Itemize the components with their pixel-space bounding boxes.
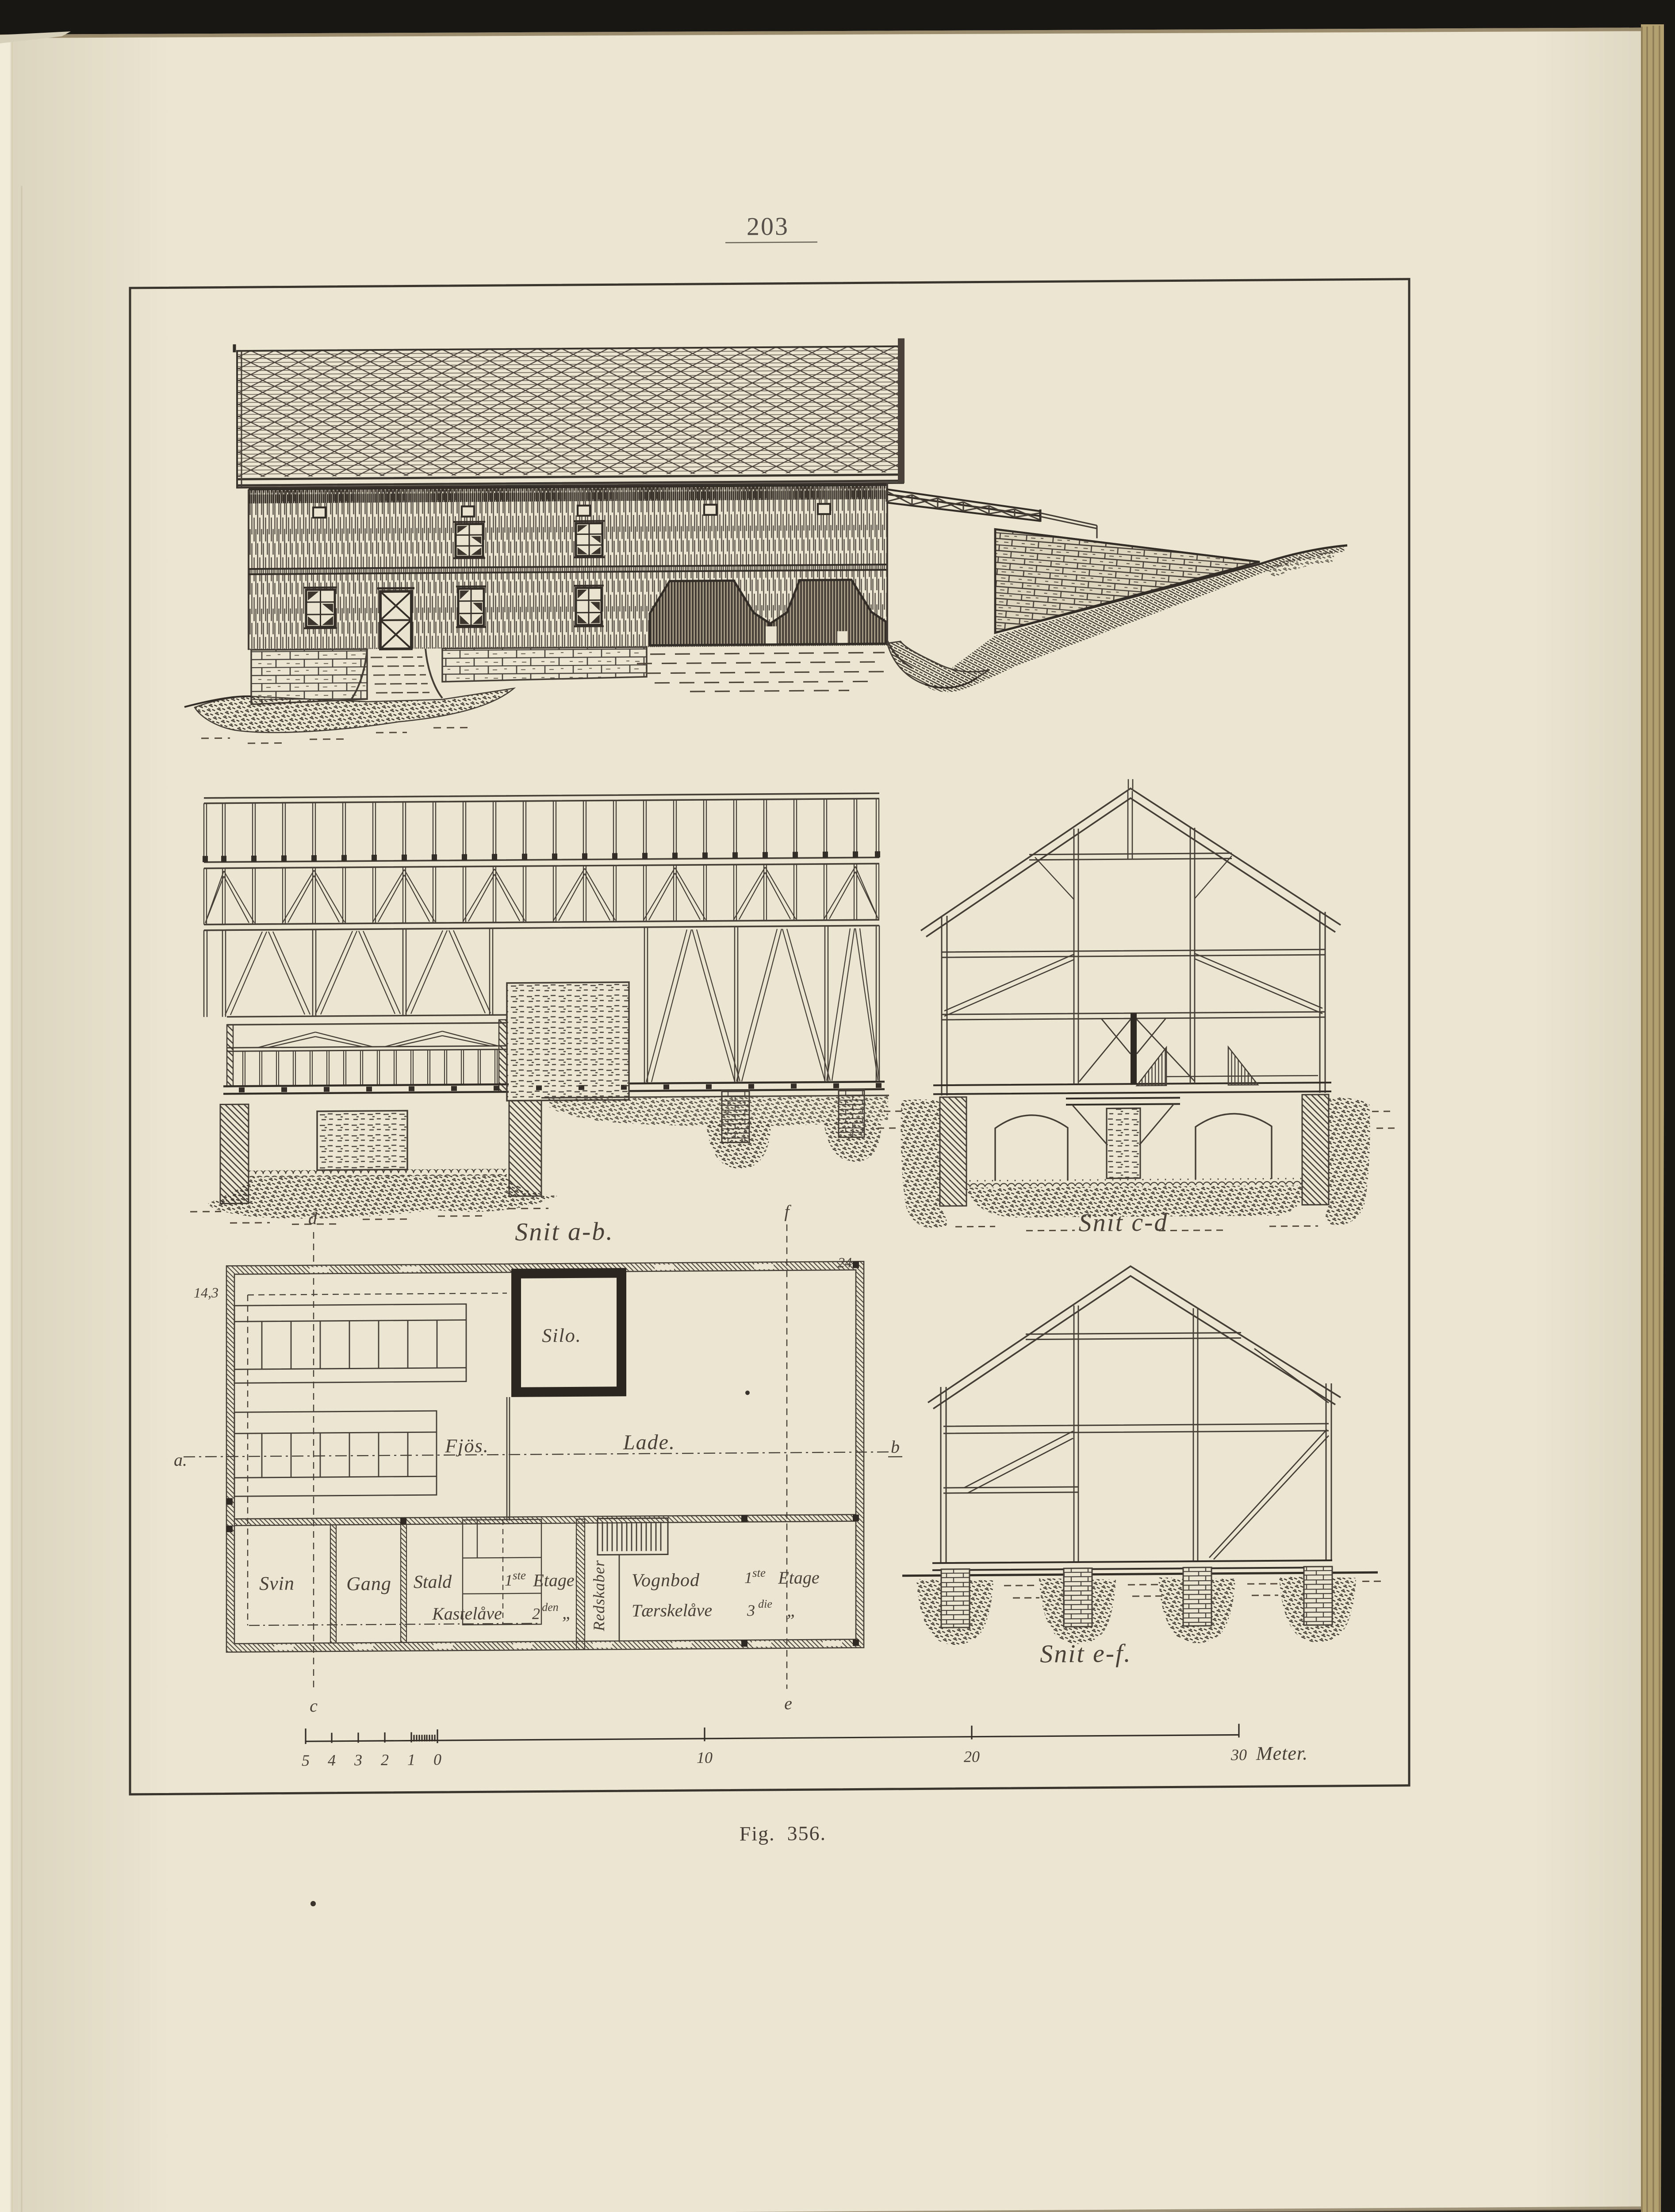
svg-text:„: „ — [787, 1600, 797, 1620]
svg-text:Lade.: Lade. — [623, 1430, 675, 1454]
svg-text:10: 10 — [697, 1749, 713, 1767]
svg-text:1: 1 — [407, 1751, 415, 1768]
svg-text:Silo.: Silo. — [542, 1325, 581, 1347]
svg-text:1: 1 — [505, 1571, 513, 1589]
svg-text:1: 1 — [744, 1569, 752, 1586]
svg-text:Svin: Svin — [259, 1572, 295, 1594]
svg-text:d: d — [308, 1208, 318, 1228]
svg-text:c: c — [310, 1696, 318, 1716]
svg-text:203: 203 — [747, 212, 789, 241]
svg-text:Tærskelåve: Tærskelåve — [632, 1600, 712, 1621]
svg-text:Redskaber: Redskaber — [590, 1560, 608, 1632]
svg-text:e: e — [784, 1693, 792, 1713]
svg-text:0: 0 — [433, 1751, 441, 1768]
svg-text:Snit c-d: Snit c-d — [1079, 1208, 1169, 1237]
svg-text:ste: ste — [513, 1569, 526, 1582]
svg-text:30: 30 — [1230, 1746, 1247, 1763]
svg-text:Vognbod: Vognbod — [632, 1570, 700, 1591]
svg-text:Etage: Etage — [778, 1567, 819, 1588]
svg-text:4: 4 — [328, 1751, 336, 1769]
svg-text:20: 20 — [964, 1748, 980, 1766]
svg-text:3: 3 — [354, 1751, 362, 1769]
svg-text:b: b — [891, 1437, 900, 1457]
svg-text:Kastelåve: Kastelåve — [432, 1603, 502, 1624]
svg-text:24.: 24. — [838, 1254, 855, 1270]
svg-text:Fig. 356.: Fig. 356. — [740, 1822, 826, 1845]
svg-text:Snit a-b.: Snit a-b. — [515, 1217, 614, 1246]
svg-text:Snit e-f.: Snit e-f. — [1040, 1639, 1131, 1668]
svg-text:2: 2 — [381, 1751, 389, 1769]
svg-text:„: „ — [562, 1603, 572, 1623]
svg-text:14,3: 14,3 — [194, 1285, 218, 1301]
svg-text:5: 5 — [302, 1751, 310, 1769]
svg-text:3: 3 — [747, 1601, 755, 1619]
svg-text:ste: ste — [752, 1566, 766, 1579]
svg-text:2: 2 — [532, 1605, 540, 1622]
svg-text:die: die — [758, 1598, 772, 1610]
svg-text:Meter.: Meter. — [1256, 1742, 1308, 1764]
svg-text:den: den — [542, 1601, 559, 1613]
svg-text:Stald: Stald — [414, 1572, 452, 1593]
svg-text:a.: a. — [174, 1450, 187, 1470]
svg-text:Etage: Etage — [533, 1570, 574, 1590]
svg-text:Fjös.: Fjös. — [445, 1435, 489, 1457]
svg-text:Gang: Gang — [346, 1573, 391, 1595]
